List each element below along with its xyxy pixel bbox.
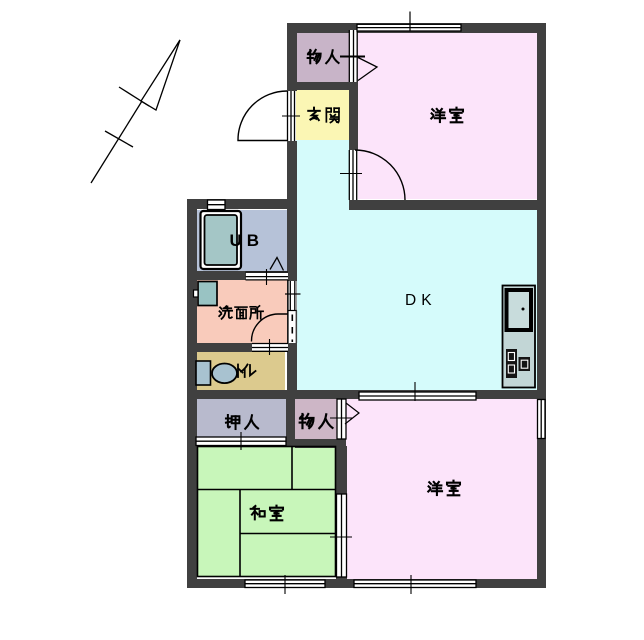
svg-text:UB: UB [230, 231, 265, 250]
svg-text:DK: DK [405, 292, 437, 309]
